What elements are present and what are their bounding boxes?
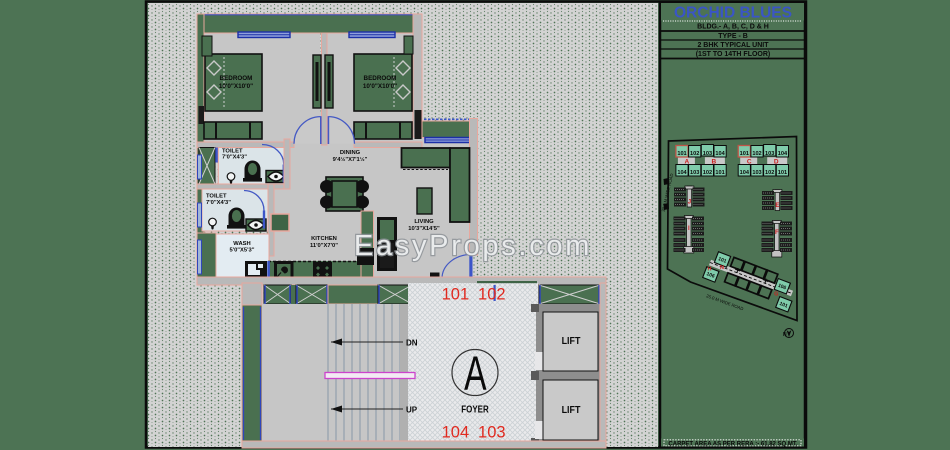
svg-text:102: 102 bbox=[752, 151, 761, 157]
svg-text:N: N bbox=[720, 265, 724, 271]
svg-text:101: 101 bbox=[677, 151, 686, 157]
svg-text:9'4½"X7'1½": 9'4½"X7'1½" bbox=[333, 156, 368, 163]
svg-text:LIFT: LIFT bbox=[562, 335, 581, 347]
svg-text:(1ST TO 14TH FLOOR): (1ST TO 14TH FLOOR) bbox=[696, 51, 771, 58]
svg-text:LIVING: LIVING bbox=[414, 219, 434, 225]
svg-text:10'0"X10'0": 10'0"X10'0" bbox=[219, 83, 253, 90]
svg-text:CARPET AREA AS PER RERA :- 61.: CARPET AREA AS PER RERA :- 61.82 SQ.MT. bbox=[668, 441, 797, 447]
svg-text:104: 104 bbox=[740, 170, 750, 176]
svg-text:103: 103 bbox=[765, 151, 774, 157]
svg-text:104: 104 bbox=[677, 170, 687, 176]
svg-text:D: D bbox=[774, 158, 779, 165]
svg-text:2 BHK TYPICAL UNIT: 2 BHK TYPICAL UNIT bbox=[697, 42, 769, 49]
svg-text:WASH: WASH bbox=[233, 241, 250, 247]
svg-text:LIFT: LIFT bbox=[562, 404, 581, 416]
svg-text:C: C bbox=[747, 158, 752, 165]
svg-text:103: 103 bbox=[703, 151, 712, 157]
svg-text:BEDROOM: BEDROOM bbox=[220, 75, 253, 82]
svg-text:N: N bbox=[783, 332, 787, 338]
svg-text:101: 101 bbox=[778, 170, 787, 176]
svg-text:G: G bbox=[774, 291, 778, 297]
svg-text:F: F bbox=[775, 230, 779, 236]
svg-text:DINING: DINING bbox=[340, 150, 361, 156]
svg-text:EasyProps.com: EasyProps.com bbox=[354, 230, 592, 262]
svg-text:101: 101 bbox=[740, 151, 749, 157]
svg-text:103: 103 bbox=[478, 424, 506, 442]
svg-text:5'0"X5'3": 5'0"X5'3" bbox=[229, 248, 254, 254]
svg-text:TOILET: TOILET bbox=[206, 194, 227, 200]
svg-text:102: 102 bbox=[703, 170, 712, 176]
svg-text:H: H bbox=[708, 266, 712, 272]
svg-text:BEDROOM: BEDROOM bbox=[364, 75, 397, 82]
svg-text:7'0"X4'3": 7'0"X4'3" bbox=[206, 200, 231, 206]
svg-text:FOYER: FOYER bbox=[461, 404, 489, 415]
svg-text:104: 104 bbox=[778, 151, 788, 157]
svg-text:104: 104 bbox=[715, 151, 725, 157]
svg-text:11'0"X7'0": 11'0"X7'0" bbox=[310, 243, 338, 249]
svg-text:10'0"X10'0": 10'0"X10'0" bbox=[363, 83, 397, 90]
svg-text:KITCHEN: KITCHEN bbox=[311, 236, 337, 242]
svg-text:E: E bbox=[775, 203, 779, 209]
svg-text:BLDG.- A, B, C, D & H: BLDG.- A, B, C, D & H bbox=[697, 24, 769, 31]
svg-text:UP: UP bbox=[406, 406, 418, 415]
svg-text:7'0"X4'3": 7'0"X4'3" bbox=[222, 155, 247, 161]
svg-text:J: J bbox=[688, 200, 691, 206]
svg-text:DN: DN bbox=[406, 339, 418, 348]
svg-text:A: A bbox=[464, 345, 487, 399]
svg-text:B: B bbox=[712, 158, 717, 165]
svg-text:103: 103 bbox=[752, 170, 761, 176]
svg-text:104: 104 bbox=[442, 424, 470, 442]
svg-text:A: A bbox=[685, 158, 690, 165]
svg-text:102: 102 bbox=[765, 170, 774, 176]
svg-text:101: 101 bbox=[715, 170, 724, 176]
svg-text:ORCHID BLUES: ORCHID BLUES bbox=[674, 5, 792, 22]
svg-text:103: 103 bbox=[690, 170, 699, 176]
svg-text:102: 102 bbox=[690, 151, 699, 157]
svg-text:102: 102 bbox=[478, 286, 506, 304]
svg-text:TYPE - B: TYPE - B bbox=[718, 33, 748, 40]
svg-text:101: 101 bbox=[442, 286, 470, 304]
